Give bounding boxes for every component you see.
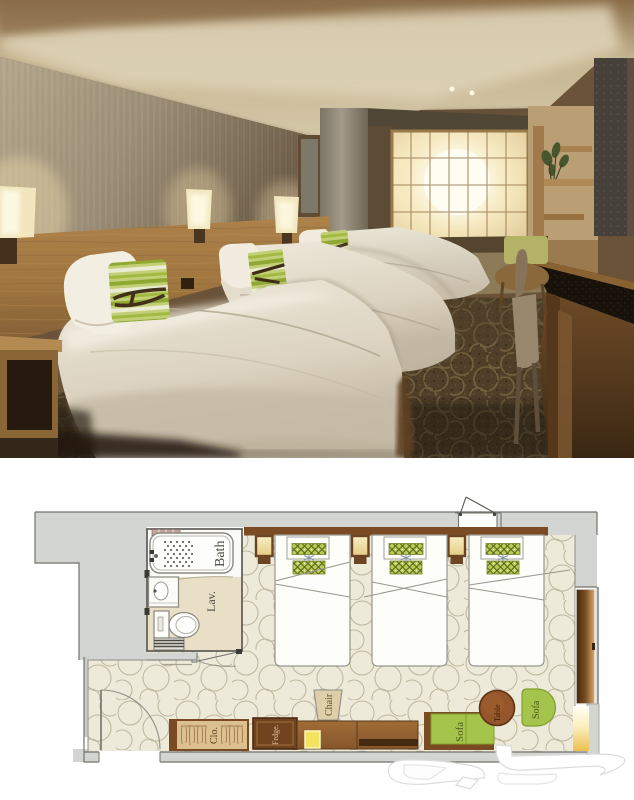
svg-text:Frdge.: Frdge. (271, 724, 280, 745)
svg-text:Chair: Chair (324, 693, 335, 716)
svg-text:Bath: Bath (213, 541, 228, 567)
svg-text:Lav.: Lav. (204, 591, 218, 612)
svg-text:Sofa: Sofa (531, 700, 542, 719)
svg-text:Table: Table (493, 704, 502, 722)
svg-text:Clo.: Clo. (209, 727, 220, 744)
svg-text:Sofa: Sofa (454, 722, 466, 742)
